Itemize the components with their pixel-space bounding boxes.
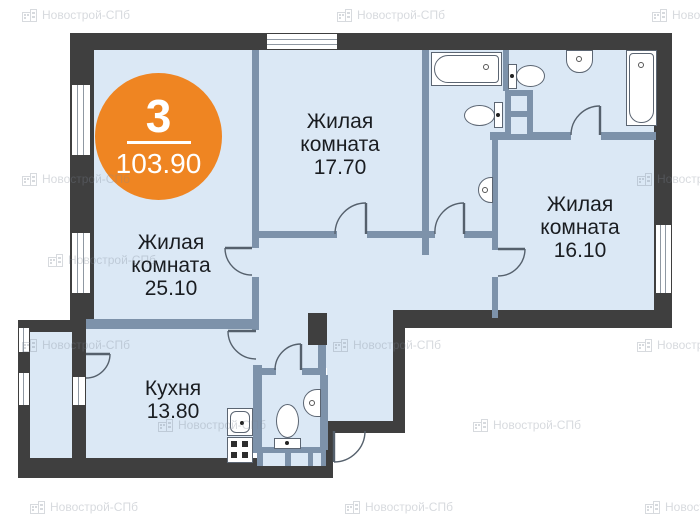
wall-partition xyxy=(367,231,422,238)
building-icon xyxy=(645,501,660,514)
stove-burner xyxy=(242,452,248,458)
room-label-living-16-10: Жилая комната 16.10 xyxy=(510,193,650,262)
badge-divider xyxy=(127,141,191,144)
floor-plan: 3 103.90 Жилая комната 17.70 Жилая комна… xyxy=(0,0,700,525)
watermark: Новострой-СПб xyxy=(637,338,700,352)
wall-partition xyxy=(259,231,337,238)
door-opening xyxy=(253,330,262,365)
wall-partition xyxy=(253,365,262,453)
window xyxy=(656,225,671,293)
balcony-window xyxy=(19,373,29,405)
building-icon xyxy=(345,501,360,514)
sink-drain xyxy=(309,400,315,406)
building-icon xyxy=(637,173,652,186)
toilet-button xyxy=(285,441,289,445)
building-icon xyxy=(652,9,667,22)
window-frame-line xyxy=(77,85,78,155)
stove-burner xyxy=(242,441,248,447)
window-frame-line xyxy=(665,225,666,293)
wall-outer-step xyxy=(393,310,405,433)
watermark: Новострой-СПб xyxy=(345,500,453,514)
wall-partition xyxy=(601,132,656,140)
window-frame-line xyxy=(23,373,24,405)
building-icon xyxy=(48,254,63,267)
toilet-button xyxy=(510,74,514,78)
watermark: Новострой-СПб xyxy=(652,8,700,22)
watermark: Новострой-СПб xyxy=(30,500,138,514)
watermark-text: Новострой-СПб xyxy=(353,338,441,352)
building-icon xyxy=(22,173,37,186)
building-icon xyxy=(30,501,45,514)
building-icon xyxy=(22,339,37,352)
wall-partition xyxy=(252,50,259,248)
door-opening xyxy=(276,368,302,375)
watermark-text: Новострой-СПб xyxy=(50,500,138,514)
room-label-kitchen: Кухня 13.80 xyxy=(103,377,243,423)
wall-partition xyxy=(252,277,259,330)
window-frame-line xyxy=(83,85,84,155)
building-icon xyxy=(337,9,352,22)
building-icon xyxy=(22,9,37,22)
window xyxy=(72,85,90,155)
plumbing-niche-cell xyxy=(263,453,285,466)
wall-partition xyxy=(492,277,498,318)
watermark: Новострой-СПб xyxy=(473,418,581,432)
room-label-living-17-70: Жилая комната 17.70 xyxy=(270,110,410,179)
toilet-bowl xyxy=(464,105,495,126)
watermark: Новострой-СПб xyxy=(333,338,441,352)
watermark: Новострой-СПб xyxy=(645,500,700,514)
wall-partition xyxy=(320,375,328,450)
hallway-floor xyxy=(259,238,492,318)
watermark: Новострой-СПб xyxy=(637,172,700,186)
sink-drain xyxy=(576,56,582,62)
watermark-text: Новострой-СПб xyxy=(657,338,700,352)
wall-outer-bottom-right xyxy=(393,310,672,328)
watermark: Новострой-СПб xyxy=(337,8,445,22)
bathtub-drain xyxy=(638,62,644,68)
door-opening xyxy=(571,132,601,140)
balcony-window xyxy=(73,377,85,405)
watermark-text: Новострой-СПб xyxy=(665,500,700,514)
door-opening xyxy=(252,248,259,277)
building-icon xyxy=(637,339,652,352)
building-icon xyxy=(158,419,173,432)
watermark: Новострой-СПб xyxy=(48,253,156,267)
door-opening xyxy=(337,231,367,238)
window xyxy=(267,34,337,49)
watermark: Новострой-СПб xyxy=(22,172,130,186)
wall-partition xyxy=(429,231,435,238)
toilet-button xyxy=(496,113,500,117)
vent-shaft-block xyxy=(308,313,327,345)
building-icon xyxy=(473,419,488,432)
stove-burner xyxy=(231,452,237,458)
flat-number: 3 xyxy=(146,94,172,138)
door-opening xyxy=(435,231,464,238)
plumbing-niche-cell xyxy=(313,453,321,466)
bathtub-basin xyxy=(434,55,499,83)
watermark-text: Новострой-СПб xyxy=(357,8,445,22)
plumbing-niche-stub xyxy=(321,453,326,466)
building-icon xyxy=(333,339,348,352)
watermark-text: Новострой-СПб xyxy=(657,172,700,186)
wall-partition xyxy=(464,231,492,238)
window-frame-line xyxy=(78,377,79,405)
stove-burner xyxy=(231,441,237,447)
window-frame-line xyxy=(267,39,337,40)
plumbing-niche-cell xyxy=(291,453,308,466)
watermark-text: Новострой-СПб xyxy=(672,8,700,22)
watermark-text: Новострой-СПб xyxy=(493,418,581,432)
watermark: Новострой-СПб xyxy=(22,338,130,352)
watermark-text: Новострой-СПб xyxy=(178,418,266,432)
watermark: Новострой-СПб xyxy=(158,418,266,432)
watermark-text: Новострой-СПб xyxy=(68,253,156,267)
door-opening xyxy=(492,250,498,277)
hallway-floor xyxy=(327,318,403,421)
wall-partition xyxy=(302,368,326,375)
window-frame-line xyxy=(267,44,337,45)
wall-partition xyxy=(422,50,429,255)
wall-outer-top xyxy=(70,33,672,50)
watermark-text: Новострой-СПб xyxy=(42,8,130,22)
watermark: Новострой-СПб xyxy=(22,8,130,22)
toilet-bowl xyxy=(276,404,299,438)
window-frame-line xyxy=(660,225,661,293)
watermark-text: Новострой-СПб xyxy=(42,338,130,352)
watermark-text: Новострой-СПб xyxy=(365,500,453,514)
wall-partition xyxy=(86,319,252,329)
vent-shaft-divider xyxy=(505,111,533,117)
toilet-bowl xyxy=(516,65,545,87)
bathtub-drain xyxy=(483,64,489,70)
sink-drain xyxy=(482,187,488,193)
watermark-text: Новострой-СПб xyxy=(42,172,130,186)
